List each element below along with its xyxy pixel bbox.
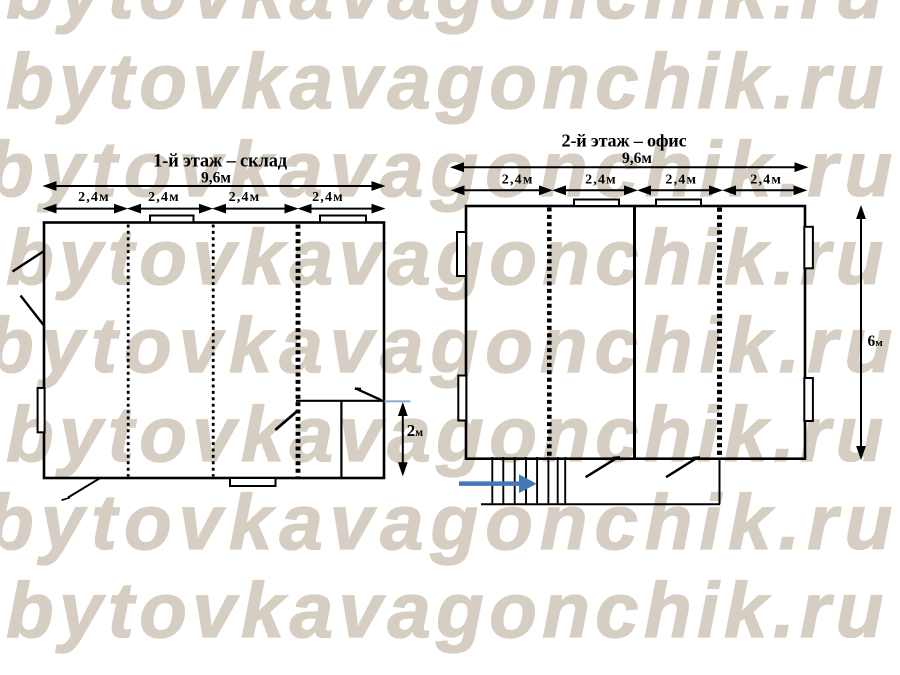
svg-text:9,6м: 9,6м: [622, 150, 652, 167]
svg-text:2,4м: 2,4м: [312, 190, 344, 205]
svg-text:6м: 6м: [868, 333, 884, 350]
svg-text:2,4м: 2,4м: [585, 172, 617, 187]
svg-text:2,4м: 2,4м: [665, 172, 697, 187]
svg-text:1-й этаж – склад: 1-й этаж – склад: [153, 152, 288, 172]
svg-text:2м: 2м: [407, 421, 424, 440]
svg-text:2,4м: 2,4м: [750, 172, 782, 187]
svg-text:2,4м: 2,4м: [148, 190, 180, 205]
svg-text:9,6м: 9,6м: [201, 170, 231, 187]
svg-text:2,4м: 2,4м: [78, 190, 110, 205]
svg-text:2,4м: 2,4м: [502, 172, 534, 187]
svg-text:2,4м: 2,4м: [229, 190, 261, 205]
svg-text:2-й этаж – офис: 2-й этаж – офис: [562, 131, 687, 151]
